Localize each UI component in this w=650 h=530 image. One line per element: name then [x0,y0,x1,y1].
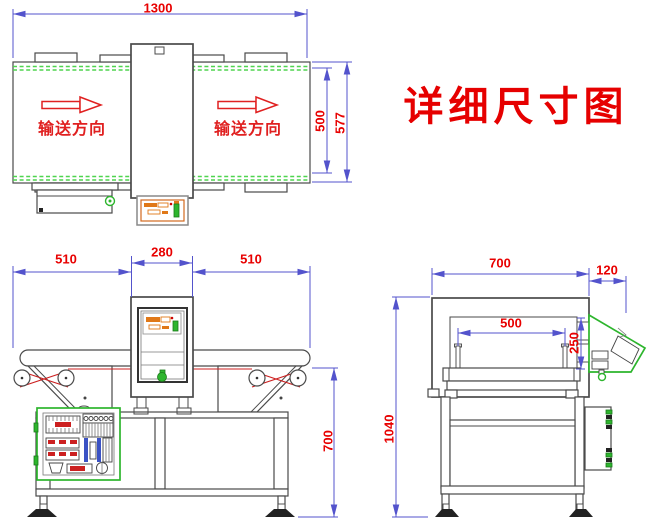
leveling-foot [265,509,295,517]
drive-motor-top [32,183,118,213]
dim-side-panel-offset: 120 [596,264,618,277]
control-panel-top [137,196,188,225]
top-view [13,9,352,225]
dim-side-aperture-height: 250 [568,332,581,354]
drive-motor-side [585,407,612,470]
dim-front-detector-width: 280 [151,246,173,259]
detector-head-top [131,44,193,198]
dim-top-belt-width: 500 [314,110,327,132]
dim-front-left-section: 510 [55,253,77,266]
leveling-foot [569,509,593,517]
dim-top-overall-width: 577 [334,112,347,134]
aperture-sensor [158,373,167,382]
leveling-foot [435,509,459,517]
dim-side-aperture-width: 500 [500,317,522,330]
flow-direction-label-right: 输送方向 [214,122,282,138]
dim-side-body-depth: 700 [489,257,511,270]
front-view [13,256,338,517]
leveling-foot [27,509,57,517]
electrical-control-box [34,408,120,480]
dim-front-belt-height: 700 [322,430,335,452]
page-title: 详细尺寸图 [404,87,629,127]
dimension-drawing: 详细尺寸图 1300 500 577 输送方向 输送方向 510 280 510… [0,0,650,530]
dim-side-total-height: 1040 [383,415,396,444]
flow-direction-label-left: 输送方向 [38,122,106,138]
dim-top-length: 1300 [144,2,173,15]
dim-front-right-section: 510 [240,253,262,266]
side-view [392,268,645,517]
start-button [174,204,179,217]
display-panel-front [143,313,181,334]
